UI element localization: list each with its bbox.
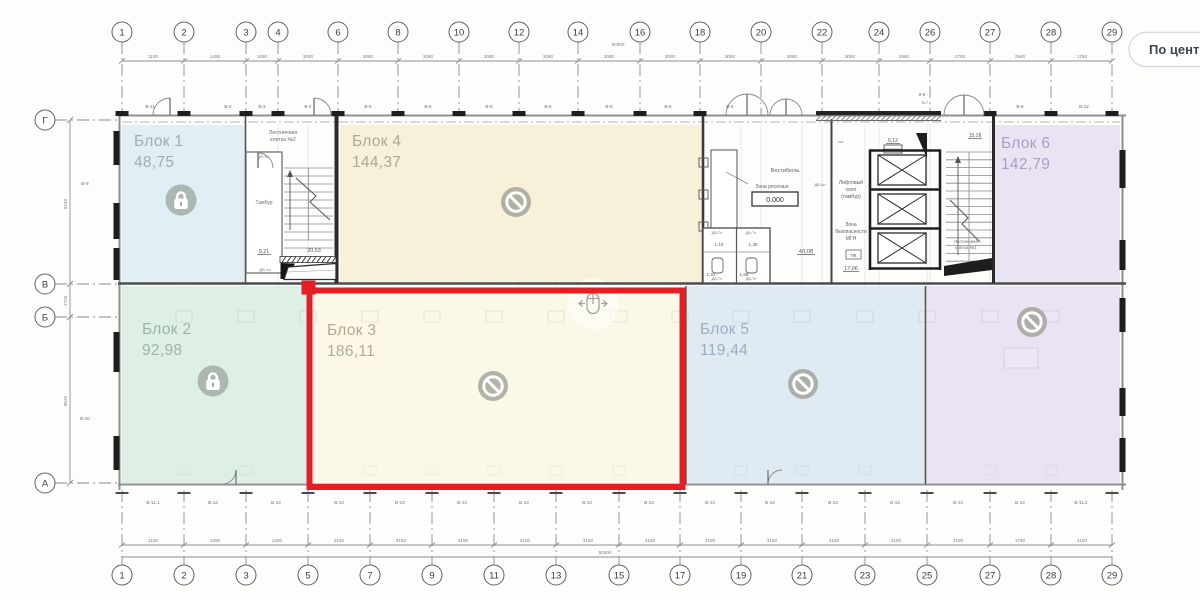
svg-text:безопасности: безопасности <box>835 229 867 235</box>
svg-text:26: 26 <box>925 28 936 39</box>
svg-text:В-11: В-11 <box>145 104 155 109</box>
svg-text:В-13: В-13 <box>519 500 529 505</box>
svg-text:1650: 1650 <box>257 54 268 59</box>
svg-text:В-5: В-5 <box>485 104 493 109</box>
svg-text:1: 1 <box>119 28 124 39</box>
svg-text:В-12: В-12 <box>1079 104 1089 109</box>
svg-text:22: 22 <box>817 28 828 39</box>
svg-text:6: 6 <box>335 28 340 39</box>
svg-text:3080: 3080 <box>665 54 676 59</box>
svg-text:2700: 2700 <box>955 54 966 59</box>
svg-text:20: 20 <box>756 28 767 39</box>
svg-text:16: 16 <box>635 28 646 39</box>
svg-text:144,37: 144,37 <box>352 154 401 171</box>
svg-text:1760: 1760 <box>1077 54 1088 59</box>
svg-text:1725: 1725 <box>63 295 68 306</box>
svg-text:В-13: В-13 <box>1015 500 1025 505</box>
svg-text:3080: 3080 <box>845 54 856 59</box>
svg-text:27: 27 <box>985 571 996 582</box>
svg-text:В-13: В-13 <box>457 500 467 505</box>
svg-text:2: 2 <box>181 571 186 582</box>
svg-text:1: 1 <box>119 571 124 582</box>
svg-text:1450: 1450 <box>210 54 221 59</box>
svg-text:9520: 9520 <box>63 395 68 406</box>
svg-text:МГН: МГН <box>846 236 857 242</box>
svg-text:3: 3 <box>243 28 248 39</box>
svg-text:3150: 3150 <box>645 538 656 543</box>
svg-text:холл: холл <box>846 187 857 193</box>
svg-text:186,11: 186,11 <box>327 343 375 360</box>
svg-text:Блок 1: Блок 1 <box>134 133 183 150</box>
svg-text:19: 19 <box>736 571 747 582</box>
svg-text:3000: 3000 <box>303 54 314 59</box>
svg-text:3150: 3150 <box>829 538 840 543</box>
svg-text:50300: 50300 <box>599 550 612 555</box>
svg-text:1100: 1100 <box>1077 538 1087 543</box>
svg-text:ДВ-1и: ДВ-1и <box>259 267 270 272</box>
svg-text:В-8: В-8 <box>1016 104 1024 109</box>
svg-text:1450: 1450 <box>210 538 221 543</box>
svg-text:В-2: В-2 <box>224 104 232 109</box>
svg-text:21: 21 <box>797 571 808 582</box>
svg-text:3080: 3080 <box>423 54 434 59</box>
svg-text:В-10: В-10 <box>80 416 90 421</box>
svg-text:В-5: В-5 <box>664 104 672 109</box>
svg-text:25: 25 <box>922 571 933 582</box>
svg-text:1,10: 1,10 <box>715 242 724 247</box>
svg-text:23: 23 <box>860 571 871 582</box>
svg-text:Блок 6: Блок 6 <box>1001 135 1050 152</box>
svg-text:119,44: 119,44 <box>700 342 748 359</box>
svg-text:15: 15 <box>614 571 625 582</box>
svg-text:Блок 3: Блок 3 <box>327 322 376 339</box>
svg-text:27: 27 <box>985 28 996 39</box>
svg-text:Тамбур: Тамбур <box>256 200 273 206</box>
svg-text:142,79: 142,79 <box>1001 156 1050 173</box>
svg-text:ДВ-7п: ДВ-7п <box>746 231 757 235</box>
svg-text:8: 8 <box>395 28 400 39</box>
svg-text:В-13: В-13 <box>395 500 405 505</box>
svg-text:92,98: 92,98 <box>142 342 182 359</box>
svg-text:6,12: 6,12 <box>888 138 898 144</box>
svg-text:В: В <box>42 280 48 291</box>
svg-text:2960: 2960 <box>899 54 910 59</box>
svg-text:Блок 5: Блок 5 <box>700 321 749 338</box>
svg-text:3150: 3150 <box>767 538 778 543</box>
svg-text:5: 5 <box>305 571 310 582</box>
svg-text:3080: 3080 <box>725 54 736 59</box>
svg-text:Блок 4: Блок 4 <box>352 133 401 150</box>
svg-text:3: 3 <box>243 571 248 582</box>
svg-text:ПК: ПК <box>851 253 857 258</box>
svg-text:В-5: В-5 <box>544 104 552 109</box>
svg-text:Лифтовый: Лифтовый <box>839 179 863 186</box>
svg-text:По центру: По центру <box>1149 42 1200 57</box>
svg-text:В-13: В-13 <box>582 500 592 505</box>
svg-text:3080: 3080 <box>363 54 374 59</box>
svg-text:В-3: В-3 <box>258 104 266 109</box>
svg-text:ДВ-7л: ДВ-7л <box>712 277 723 281</box>
svg-text:В-12: В-12 <box>208 500 218 505</box>
svg-text:0.000: 0.000 <box>766 197 784 204</box>
svg-text:Зона ресепшн: Зона ресепшн <box>755 184 788 190</box>
svg-text:3150: 3150 <box>458 538 469 543</box>
svg-text:3080: 3080 <box>787 54 798 59</box>
svg-text:В-5: В-5 <box>364 104 372 109</box>
svg-text:В-9: В-9 <box>81 181 89 186</box>
svg-text:(тамбур): (тамбур) <box>841 194 861 200</box>
svg-text:1100: 1100 <box>148 538 158 543</box>
svg-text:8150: 8150 <box>63 198 68 209</box>
svg-text:3080: 3080 <box>484 54 495 59</box>
svg-text:В-5: В-5 <box>605 104 613 109</box>
svg-text:29: 29 <box>1107 28 1118 39</box>
svg-text:13: 13 <box>551 571 562 582</box>
svg-text:В-5: В-5 <box>424 104 432 109</box>
svg-text:4: 4 <box>275 28 280 39</box>
svg-text:28: 28 <box>1046 571 1057 582</box>
svg-text:18: 18 <box>695 28 706 39</box>
svg-text:3150: 3150 <box>396 538 407 543</box>
svg-text:8-6: 8-6 <box>919 92 926 97</box>
svg-text:В-13: В-13 <box>705 500 715 505</box>
svg-text:20,53: 20,53 <box>307 248 321 254</box>
svg-text:В-4: В-4 <box>304 104 312 109</box>
svg-text:В-11.2: В-11.2 <box>1074 500 1088 505</box>
svg-text:3080: 3080 <box>543 54 554 59</box>
svg-text:ДВ-4п: ДВ-4п <box>814 182 825 187</box>
svg-text:1100: 1100 <box>148 54 158 59</box>
svg-text:9: 9 <box>429 571 434 582</box>
svg-text:50300: 50300 <box>612 42 625 47</box>
svg-text:3150: 3150 <box>520 538 531 543</box>
svg-text:В-13: В-13 <box>828 500 838 505</box>
svg-text:клетка №2: клетка №2 <box>270 137 296 143</box>
svg-text:14: 14 <box>573 28 584 39</box>
svg-text:40,08: 40,08 <box>799 249 814 255</box>
svg-text:ДВ-7л: ДВ-7л <box>712 231 723 235</box>
svg-text:7: 7 <box>367 571 372 582</box>
svg-text:12: 12 <box>514 28 525 39</box>
svg-text:В-11.1: В-11.1 <box>146 500 160 505</box>
svg-text:3150: 3150 <box>583 538 594 543</box>
svg-text:В-6: В-6 <box>726 104 734 109</box>
svg-text:1,66: 1,66 <box>740 272 749 277</box>
svg-text:17: 17 <box>675 571 686 582</box>
svg-text:А: А <box>42 479 49 490</box>
svg-text:клетка №1: клетка №1 <box>955 245 977 250</box>
svg-text:1,91: 1,91 <box>707 272 716 277</box>
svg-text:В-13: В-13 <box>334 500 344 505</box>
svg-text:3080: 3080 <box>604 54 615 59</box>
svg-text:Вестибюль: Вестибюль <box>771 168 800 174</box>
svg-text:2940: 2940 <box>1015 54 1026 59</box>
svg-text:3150: 3150 <box>705 538 716 543</box>
svg-text:29: 29 <box>1107 571 1118 582</box>
svg-text:9,21: 9,21 <box>259 249 270 255</box>
svg-text:17,06: 17,06 <box>844 266 858 272</box>
svg-text:2: 2 <box>181 28 186 39</box>
svg-text:В-12: В-12 <box>765 500 775 505</box>
svg-text:ДВ-1и: ДВ-1и <box>257 154 268 159</box>
svg-text:клг: клг <box>838 139 844 144</box>
svg-text:Блок 2: Блок 2 <box>142 321 191 338</box>
svg-text:Лестничная: Лестничная <box>269 130 297 136</box>
svg-text:1760: 1760 <box>1015 538 1026 543</box>
svg-text:15,18: 15,18 <box>969 133 982 139</box>
svg-text:В-13: В-13 <box>953 500 963 505</box>
svg-text:24: 24 <box>874 28 885 39</box>
svg-text:1450: 1450 <box>272 538 283 543</box>
svg-text:В-7: В-7 <box>922 100 929 105</box>
svg-text:3150: 3150 <box>953 538 964 543</box>
svg-text:1,30: 1,30 <box>749 242 758 247</box>
svg-text:28: 28 <box>1046 28 1057 39</box>
svg-text:ДВ-7п: ДВ-7п <box>746 277 757 281</box>
svg-text:11: 11 <box>489 571 499 582</box>
svg-text:Б: Б <box>42 313 48 324</box>
svg-text:В-13: В-13 <box>890 500 900 505</box>
svg-text:10: 10 <box>454 28 465 39</box>
svg-text:В-13: В-13 <box>644 500 654 505</box>
svg-text:3150: 3150 <box>891 538 902 543</box>
svg-text:3150: 3150 <box>334 538 345 543</box>
svg-text:48,75: 48,75 <box>134 154 174 171</box>
svg-text:В-13: В-13 <box>271 500 281 505</box>
svg-text:Г: Г <box>42 116 47 127</box>
svg-text:Зона: Зона <box>845 222 857 228</box>
svg-text:Лестничная: Лестничная <box>954 239 979 244</box>
